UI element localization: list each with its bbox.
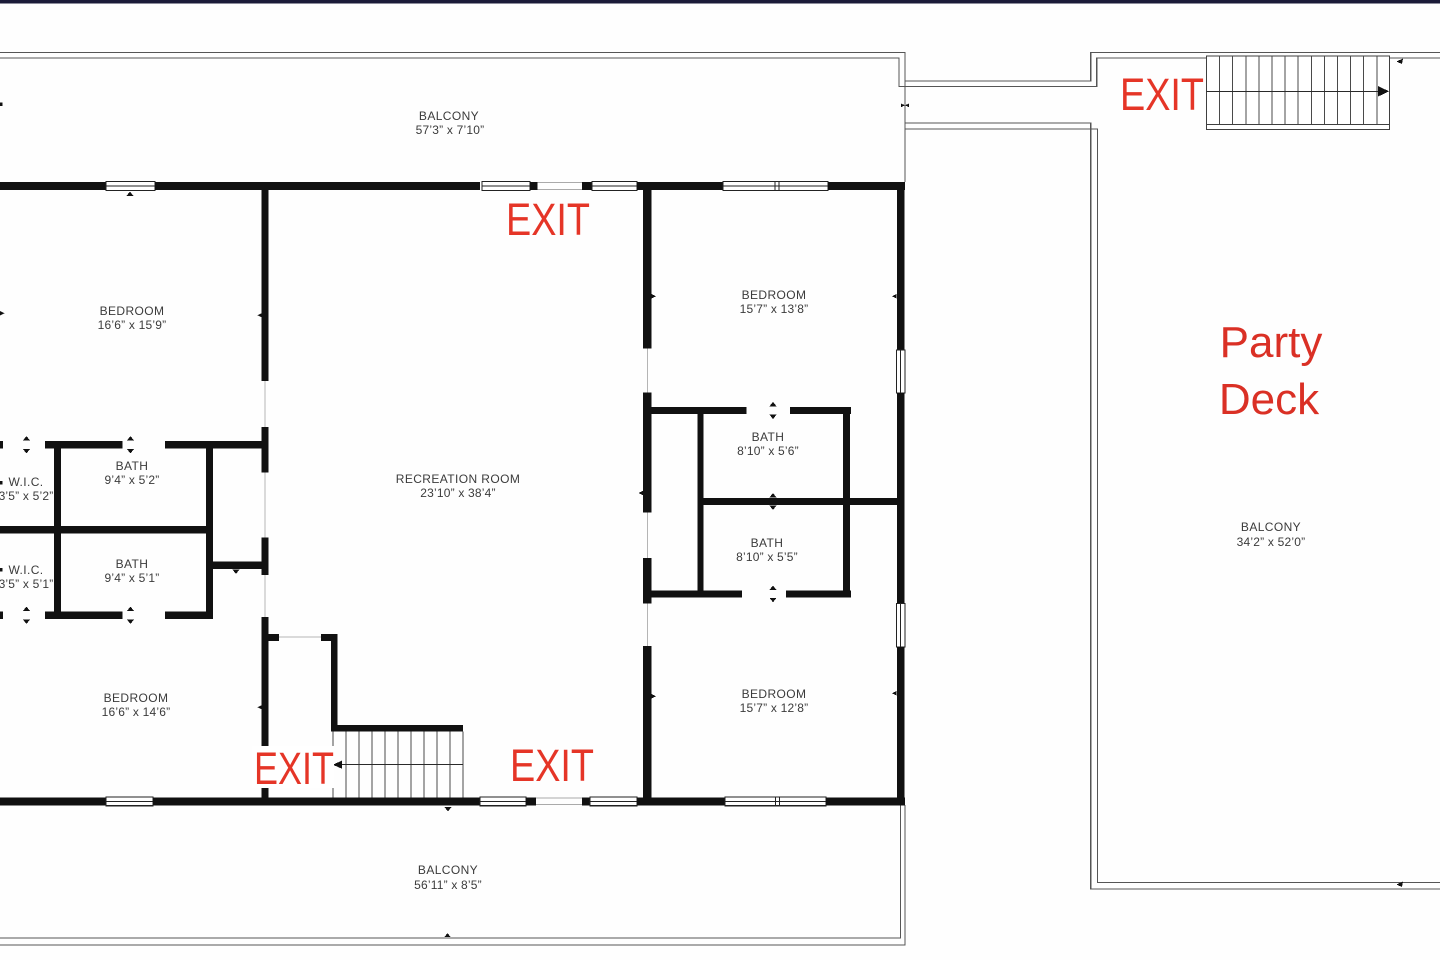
svg-text:16’6” x 15’9”: 16’6” x 15’9” — [98, 318, 167, 332]
svg-text:EXIT: EXIT — [254, 743, 334, 794]
svg-text:3’5” x 5’2”: 3’5” x 5’2” — [0, 489, 53, 503]
svg-text:15’7” x 13’8”: 15’7” x 13’8” — [740, 302, 809, 316]
svg-text:9’4” x 5’1”: 9’4” x 5’1” — [105, 571, 160, 585]
svg-text:23’10” x 38’4”: 23’10” x 38’4” — [420, 486, 496, 500]
svg-text:EXIT: EXIT — [1120, 69, 1204, 120]
svg-text:BEDROOM: BEDROOM — [742, 288, 807, 302]
svg-text:BATH: BATH — [116, 557, 149, 571]
svg-text:56’11” x 8’5”: 56’11” x 8’5” — [414, 878, 482, 892]
svg-text:BALCONY: BALCONY — [418, 863, 478, 877]
svg-text:EXIT: EXIT — [510, 740, 594, 791]
svg-text:8’10” x 5’5”: 8’10” x 5’5” — [736, 550, 798, 564]
svg-text:BATH: BATH — [751, 536, 784, 550]
svg-text:BEDROOM: BEDROOM — [104, 691, 169, 705]
svg-text:BEDROOM: BEDROOM — [742, 687, 807, 701]
svg-text:BALCONY: BALCONY — [1241, 520, 1301, 534]
svg-text:EXIT: EXIT — [506, 194, 590, 245]
svg-text:16’6” x 14’6”: 16’6” x 14’6” — [102, 705, 171, 719]
svg-text:W.I.C.: W.I.C. — [8, 475, 43, 489]
svg-text:BATH: BATH — [752, 430, 785, 444]
svg-text:8’10” x 5’6”: 8’10” x 5’6” — [737, 444, 799, 458]
svg-text:15’7” x 12’8”: 15’7” x 12’8” — [740, 701, 809, 715]
svg-text:BATH: BATH — [116, 459, 149, 473]
svg-text:W.I.C.: W.I.C. — [8, 563, 43, 577]
svg-text:Party: Party — [1220, 318, 1323, 367]
svg-text:3’5” x 5’1”: 3’5” x 5’1” — [0, 577, 53, 591]
svg-text:BALCONY: BALCONY — [419, 109, 479, 123]
svg-text:57’3” x 7’10”: 57’3” x 7’10” — [416, 123, 485, 137]
svg-text:34’2” x 52’0”: 34’2” x 52’0” — [1237, 535, 1306, 549]
svg-text:RECREATION ROOM: RECREATION ROOM — [396, 472, 520, 486]
svg-text:BEDROOM: BEDROOM — [100, 304, 165, 318]
svg-text:9’4” x 5’2”: 9’4” x 5’2” — [105, 473, 160, 487]
svg-text:Deck: Deck — [1219, 375, 1320, 424]
